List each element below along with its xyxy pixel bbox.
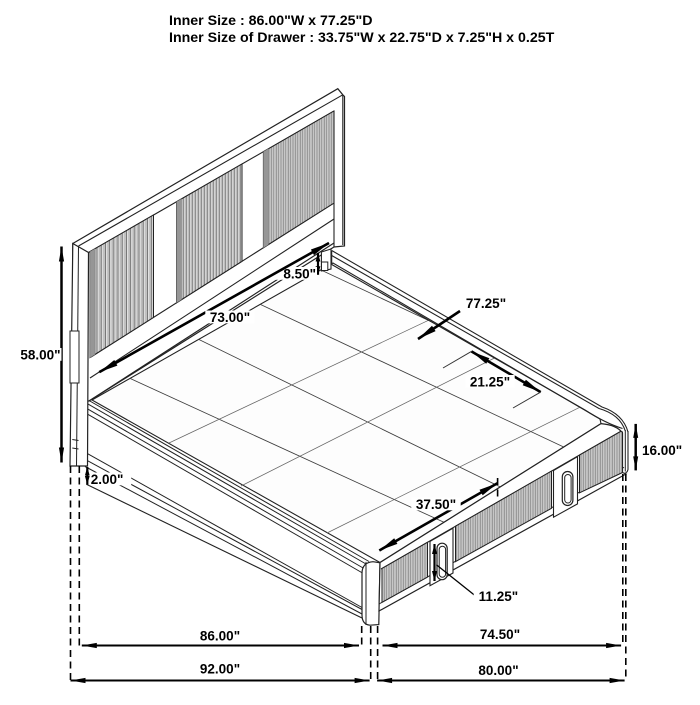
svg-text:21.25": 21.25" (470, 375, 510, 390)
svg-text:92.00": 92.00" (200, 662, 240, 677)
svg-text:80.00": 80.00" (478, 663, 518, 678)
svg-text:77.25": 77.25" (466, 296, 506, 311)
svg-text:58.00": 58.00" (20, 348, 60, 363)
svg-text:37.50": 37.50" (416, 497, 456, 512)
svg-text:Inner Size of Drawer : 33.75"W: Inner Size of Drawer : 33.75"W x 22.75"D… (169, 30, 555, 46)
svg-text:16.00": 16.00" (642, 443, 682, 458)
svg-text:11.25": 11.25" (479, 589, 518, 604)
svg-text:8.50": 8.50" (283, 267, 316, 282)
svg-text:73.00": 73.00" (210, 310, 250, 325)
svg-text:86.00": 86.00" (200, 629, 240, 644)
svg-text:74.50": 74.50" (480, 627, 520, 642)
svg-text:Inner Size : 86.00"W x 77.25"D: Inner Size : 86.00"W x 77.25"D (169, 13, 373, 29)
svg-text:2.00": 2.00" (91, 472, 124, 487)
